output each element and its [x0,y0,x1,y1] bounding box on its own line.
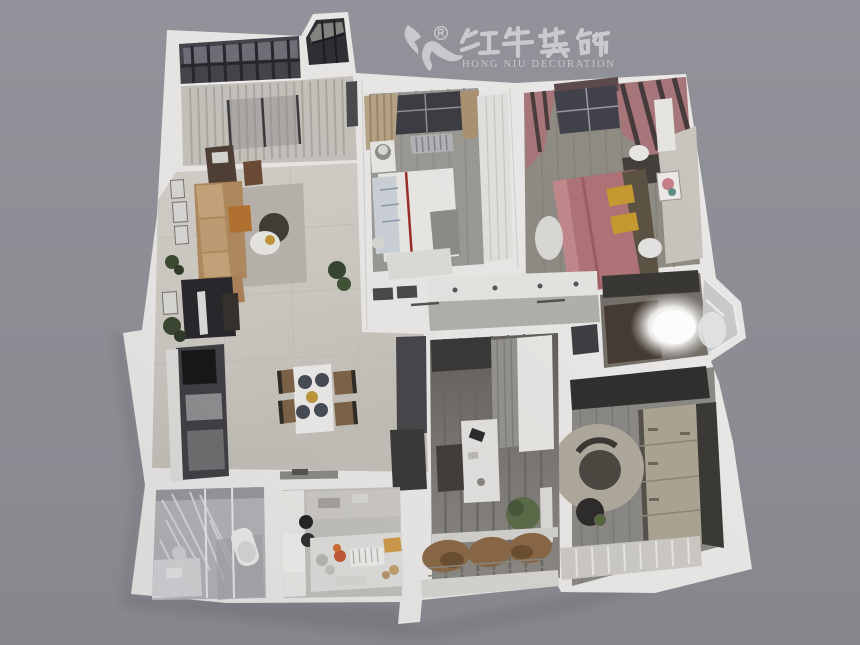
svg-text:HONG NIU DECORATION: HONG NIU DECORATION [462,59,616,70]
